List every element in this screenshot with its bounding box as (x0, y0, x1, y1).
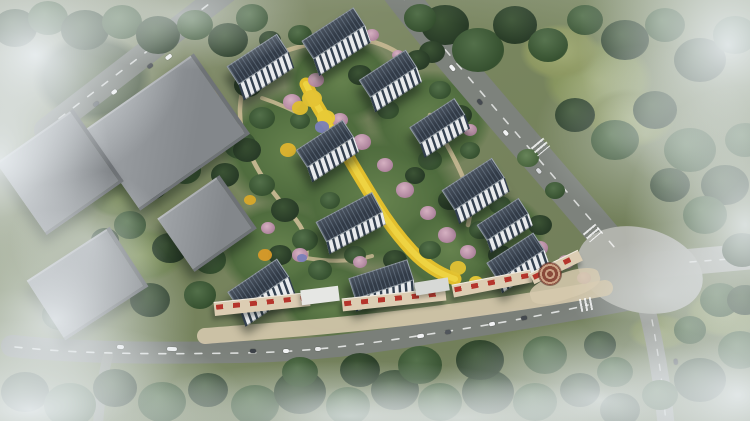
fog-cloud (10, 170, 170, 310)
fog-cloud (570, 240, 750, 350)
fog-layer (0, 0, 750, 421)
fog-cloud (110, 361, 590, 421)
fog-cloud (578, 0, 750, 205)
fog-cloud (625, 85, 750, 365)
aerial-rendering (0, 0, 750, 421)
fog-cloud (608, 295, 750, 421)
fog-cloud (50, 0, 310, 70)
fog-cloud (430, 320, 750, 421)
fog-cloud (0, 0, 185, 185)
fog-cloud (260, 378, 660, 421)
fog-cloud (0, 320, 250, 421)
fog-cloud (0, 210, 195, 421)
fog-cloud (535, 45, 750, 225)
fog-cloud (0, 30, 110, 290)
